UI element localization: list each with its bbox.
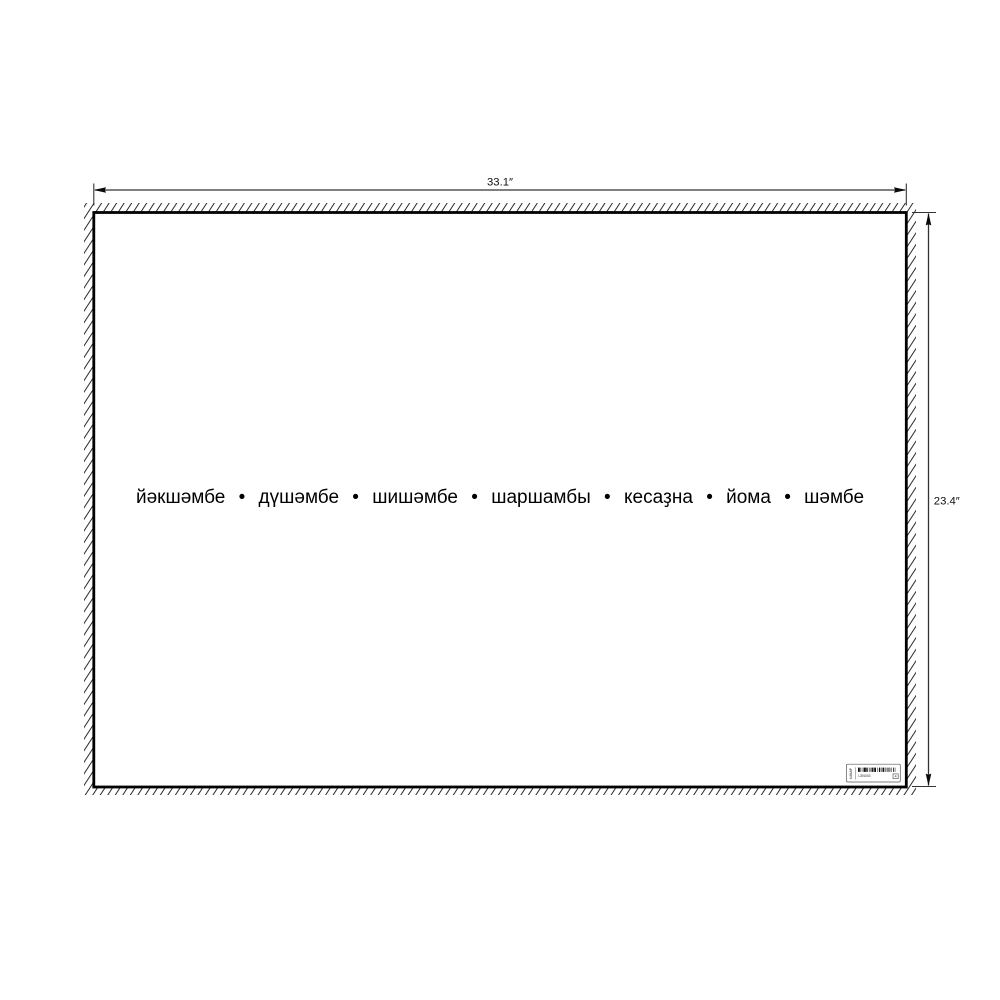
svg-text:33.1″: 33.1″ — [487, 177, 513, 189]
svg-text:4: 4 — [895, 775, 897, 779]
svg-text:ЬІМАР: ЬІМАР — [849, 767, 853, 779]
svg-text:L391003: L391003 — [858, 774, 870, 778]
svg-text:йәкшәмбе • дүшәмбе • шишәмбе •: йәкшәмбе • дүшәмбе • шишәмбе • шаршамбы … — [136, 487, 864, 508]
svg-text:23.4″: 23.4″ — [934, 496, 960, 508]
